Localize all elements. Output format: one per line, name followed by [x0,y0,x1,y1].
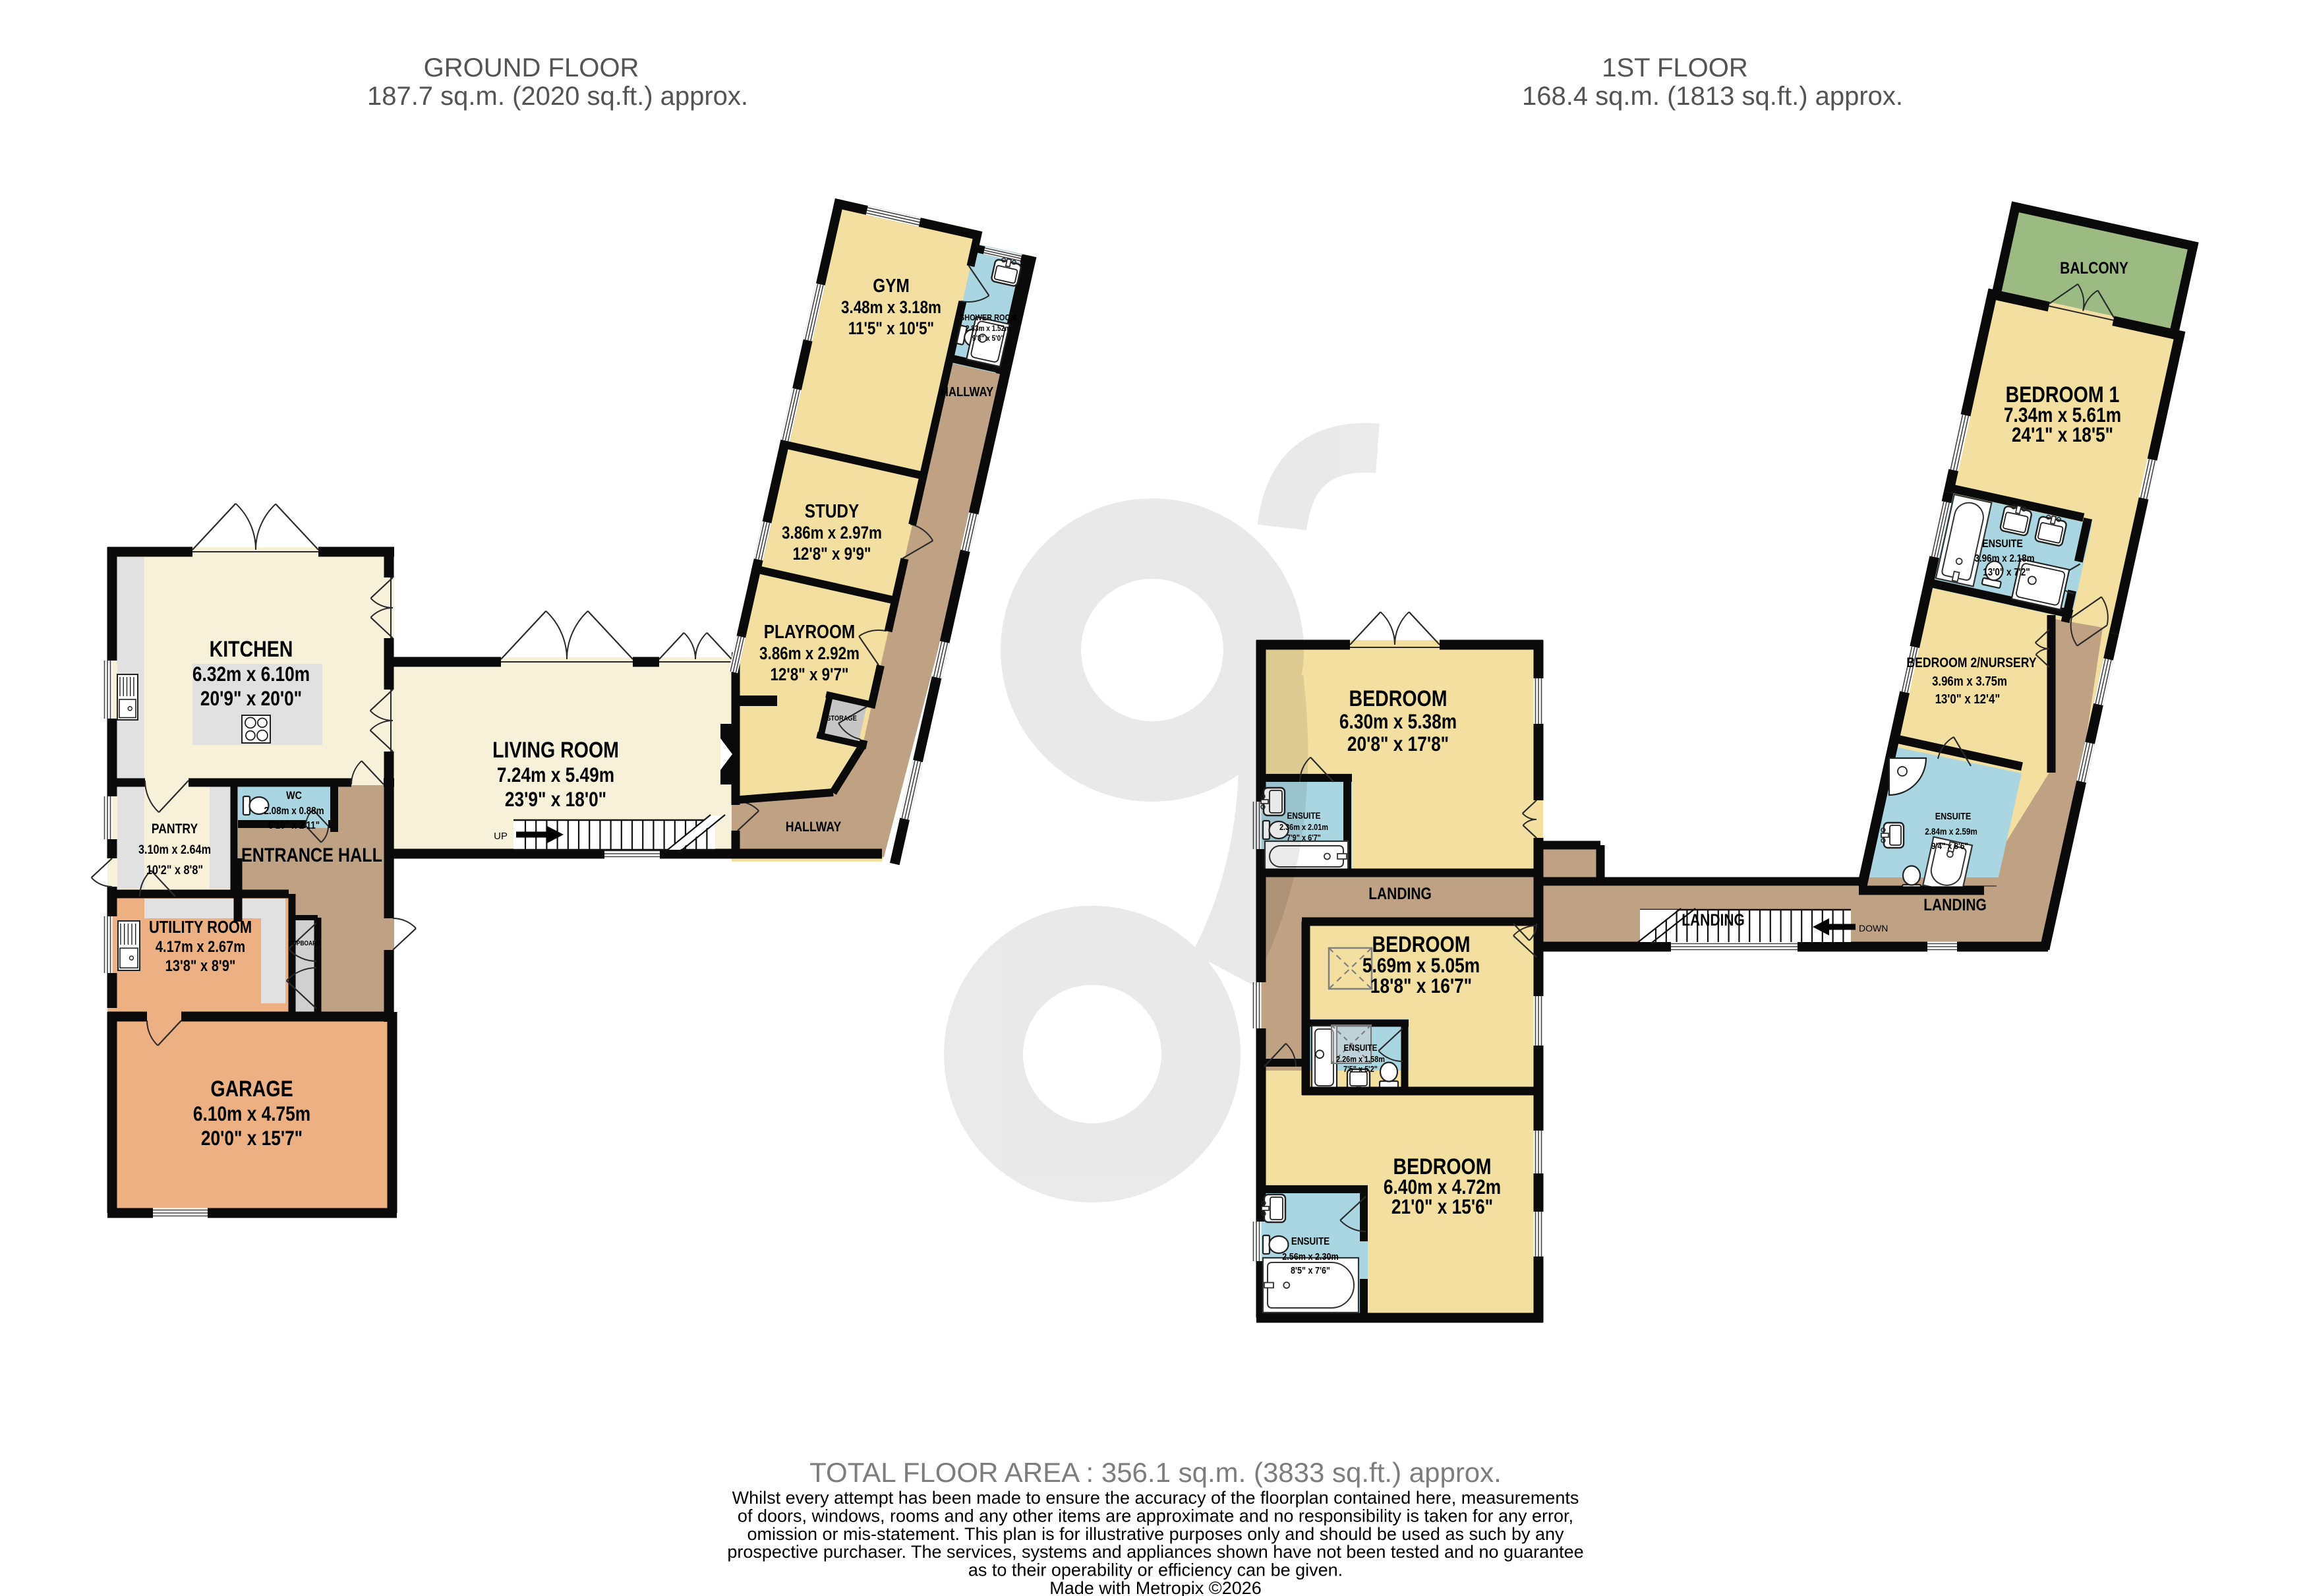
svg-text:2.84m x 2.59m: 2.84m x 2.59m [1925,826,1977,837]
svg-text:PANTRY: PANTRY [152,821,198,837]
svg-text:4.17m x 2.67m: 4.17m x 2.67m [156,937,245,955]
svg-text:omission or mis-statement. Thi: omission or mis-statement. This plan is … [747,1524,1564,1544]
svg-text:13'0" x 7'2": 13'0" x 7'2" [1983,567,2030,578]
svg-text:21'0" x 15'6": 21'0" x 15'6" [1391,1196,1493,1219]
svg-text:UP: UP [494,831,508,842]
svg-text:20'9" x 20'0": 20'9" x 20'0" [200,688,302,711]
svg-text:7'5" x 5'2": 7'5" x 5'2" [1343,1064,1378,1074]
svg-text:BEDROOM: BEDROOM [1393,1154,1491,1179]
svg-text:187.7 sq.m. (2020 sq.ft.) appr: 187.7 sq.m. (2020 sq.ft.) approx. [367,82,748,111]
svg-text:GARAGE: GARAGE [210,1077,293,1102]
svg-text:18'8" x 16'7": 18'8" x 16'7" [1370,975,1472,998]
svg-text:SHOWER ROOM: SHOWER ROOM [960,312,1016,322]
svg-text:Whilst every attempt has been: Whilst every attempt has been made to en… [732,1488,1579,1508]
svg-text:ENTRANCE HALL: ENTRANCE HALL [241,844,382,866]
svg-text:24'1" x 18'5": 24'1" x 18'5" [2012,424,2113,447]
svg-text:6'10" x 2'11": 6'10" x 2'11" [268,820,320,831]
svg-text:PLAYROOM: PLAYROOM [764,621,855,642]
svg-text:10'2" x 8'8": 10'2" x 8'8" [146,863,203,877]
svg-text:1ST FLOOR: 1ST FLOOR [1602,53,1748,82]
svg-text:ENSUITE: ENSUITE [1291,1236,1330,1247]
svg-text:UTILITY ROOM: UTILITY ROOM [149,918,252,937]
svg-text:BALCONY: BALCONY [2060,258,2128,277]
svg-text:BEDROOM 1: BEDROOM 1 [2006,382,2120,407]
svg-text:WC: WC [286,790,302,802]
svg-text:CUPBOARD: CUPBOARD [289,939,321,947]
svg-text:11'5" x 10'5": 11'5" x 10'5" [848,319,934,338]
svg-text:168.4 sq.m. (1813 sq.ft.) appr: 168.4 sq.m. (1813 sq.ft.) approx. [1522,82,1903,111]
svg-text:20'8" x 17'8": 20'8" x 17'8" [1347,733,1449,756]
svg-text:13'8" x 8'9": 13'8" x 8'9" [165,957,236,974]
svg-text:KITCHEN: KITCHEN [210,637,293,662]
svg-text:HALLWAY: HALLWAY [941,384,994,399]
svg-text:Made with Metropix ©2026: Made with Metropix ©2026 [1049,1578,1262,1596]
svg-text:BEDROOM: BEDROOM [1349,686,1447,711]
svg-text:12'8" x 9'9": 12'8" x 9'9" [792,545,871,564]
svg-text:as to their operability or eff: as to their operability or efficiency ca… [968,1560,1343,1580]
svg-text:ENSUITE: ENSUITE [1982,538,2023,550]
svg-text:BEDROOM 2/NURSERY: BEDROOM 2/NURSERY [1906,655,2036,671]
svg-text:3.10m x 2.64m: 3.10m x 2.64m [138,842,211,857]
svg-text:12'8" x 9'7": 12'8" x 9'7" [770,665,848,684]
svg-text:3.96m x 3.75m: 3.96m x 3.75m [1932,674,2007,689]
svg-text:2.56m x 2.30m: 2.56m x 2.30m [1282,1251,1338,1262]
svg-text:3.96m x 2.18m: 3.96m x 2.18m [1974,553,2034,564]
svg-text:LANDING: LANDING [1368,884,1432,902]
svg-text:STUDY: STUDY [805,500,860,521]
svg-text:BEDROOM: BEDROOM [1372,932,1470,957]
svg-text:5.69m x 5.05m: 5.69m x 5.05m [1362,955,1480,978]
svg-text:2.83m x 1.52m: 2.83m x 1.52m [966,324,1010,333]
svg-text:7.24m x 5.49m: 7.24m x 5.49m [497,764,614,787]
svg-text:TOTAL FLOOR AREA : 356.1 sq.m.: TOTAL FLOOR AREA : 356.1 sq.m. (3833 sq.… [809,1457,1502,1488]
svg-text:of doors, windows, rooms and a: of doors, windows, rooms and any other i… [738,1506,1573,1525]
svg-text:9'3" x 5'0": 9'3" x 5'0" [972,334,1004,343]
svg-text:8'5" x 7'6": 8'5" x 7'6" [1291,1264,1330,1276]
svg-text:STORAGE: STORAGE [827,715,857,723]
svg-text:3.48m x 3.18m: 3.48m x 3.18m [841,298,941,317]
svg-text:LANDING: LANDING [1923,895,1987,914]
svg-text:GROUND FLOOR: GROUND FLOOR [424,53,639,82]
svg-text:prospective purchaser. The ser: prospective purchaser. The services, sys… [727,1542,1583,1562]
svg-text:20'0" x 15'7": 20'0" x 15'7" [201,1127,303,1150]
svg-text:ENSUITE: ENSUITE [1344,1042,1378,1053]
svg-text:6.32m x 6.10m: 6.32m x 6.10m [192,663,310,686]
svg-text:HALLWAY: HALLWAY [786,819,842,835]
svg-text:6.30m x 5.38m: 6.30m x 5.38m [1339,711,1457,734]
svg-text:GYM: GYM [873,275,909,296]
svg-text:2.08m x 0.88m: 2.08m x 0.88m [264,806,324,817]
svg-text:13'0" x 12'4": 13'0" x 12'4" [1935,692,2001,707]
svg-text:LANDING: LANDING [1682,910,1745,929]
svg-text:9'4" x 8'6": 9'4" x 8'6" [1931,841,1968,851]
svg-text:2.26m x 1.58m: 2.26m x 1.58m [1336,1054,1385,1064]
svg-text:LIVING ROOM: LIVING ROOM [492,738,619,763]
svg-text:ENSUITE: ENSUITE [1935,810,1972,821]
svg-text:23'9" x 18'0": 23'9" x 18'0" [505,788,606,812]
svg-text:6.10m x 4.75m: 6.10m x 4.75m [193,1103,310,1126]
svg-text:DOWN: DOWN [1859,923,1888,933]
svg-text:3.86m x 2.97m: 3.86m x 2.97m [782,523,882,543]
svg-text:3.86m x 2.92m: 3.86m x 2.92m [759,644,860,663]
